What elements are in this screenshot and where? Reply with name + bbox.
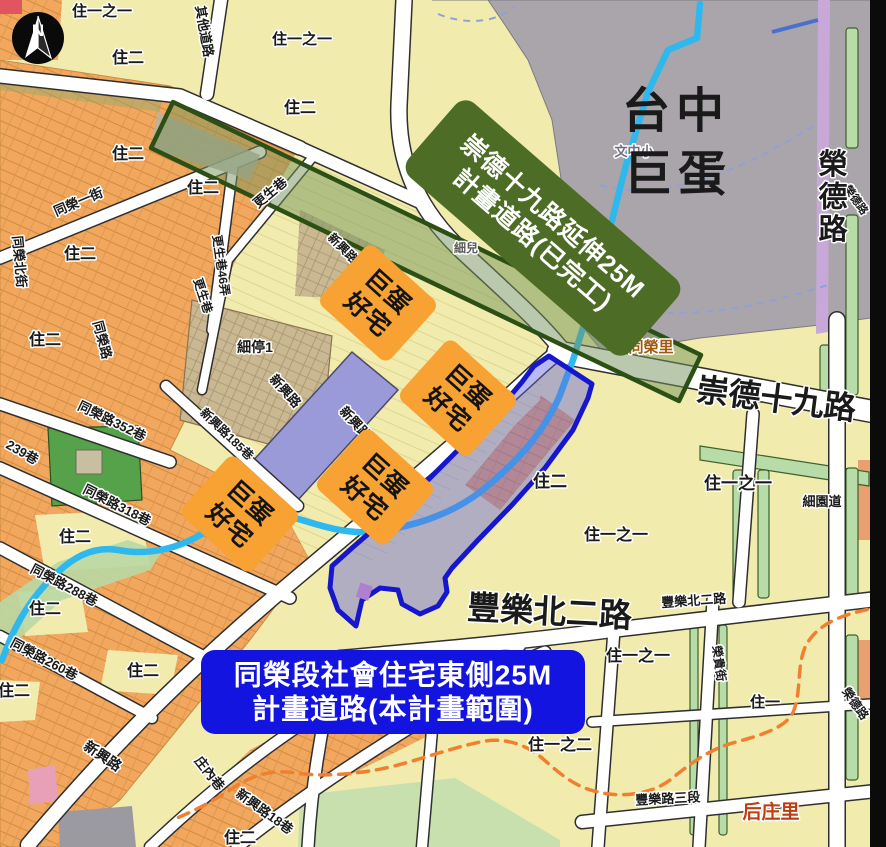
zone-label: 住二 [0, 681, 30, 700]
project-banner-text: 計畫道路(本計畫範圍) [252, 692, 534, 724]
zone-label: 住二 [533, 471, 567, 491]
zone-label: 住二 [127, 661, 159, 680]
image-edge-strip [870, 0, 886, 847]
park-building [76, 450, 102, 474]
red-corner-parcel [0, 0, 22, 14]
compass-north-icon: N [12, 12, 64, 64]
zone-label: 住一之一 [606, 646, 670, 665]
project-banner-text: 同榮段社會住宅東側25M [234, 658, 552, 690]
facility-label: 細停1 [237, 339, 273, 355]
zone-label: 住二 [112, 144, 144, 163]
facility-label: 細兒 [454, 240, 478, 255]
compass-letter: N [32, 21, 44, 40]
base-map: 住一之一住二住一之一住二住二住二住二住二住二住二住二住二住二住二住一之一住一之一… [0, 0, 886, 847]
zone-label: 住二 [64, 244, 96, 263]
project-banner: 同榮段社會住宅東側25M計畫道路(本計畫範圍) [201, 650, 585, 734]
zone-label: 住一之一 [584, 525, 648, 544]
dome-title: 台中 [622, 85, 730, 138]
pink-parcel [28, 765, 58, 805]
zone-label: 住二 [284, 98, 316, 117]
zone-label: 住二 [112, 48, 144, 67]
zone-label: 住一之一 [704, 473, 772, 493]
zone-label: 住一之二 [528, 735, 592, 754]
zone-label: 住一之一 [72, 2, 132, 20]
map-canvas: 住一之一住二住一之一住二住二住二住二住二住二住二住二住二住二住二住一之一住一之一… [0, 0, 886, 847]
street-label: 細園道 [802, 494, 841, 509]
zone-label: 住二 [29, 599, 61, 618]
dome-title: 巨蛋 [624, 148, 732, 201]
zone-label: 住二 [59, 527, 91, 546]
district-label: 后庄里 [742, 800, 799, 823]
gray-building [58, 806, 136, 847]
road-title: 榮德路 [818, 148, 848, 246]
zone-label: 住一 [750, 693, 780, 711]
zone-label: 住二 [187, 178, 219, 197]
zone-label: 住二 [224, 828, 256, 847]
zone-label: 住一之一 [272, 30, 332, 48]
zone-label: 住二 [29, 330, 61, 349]
